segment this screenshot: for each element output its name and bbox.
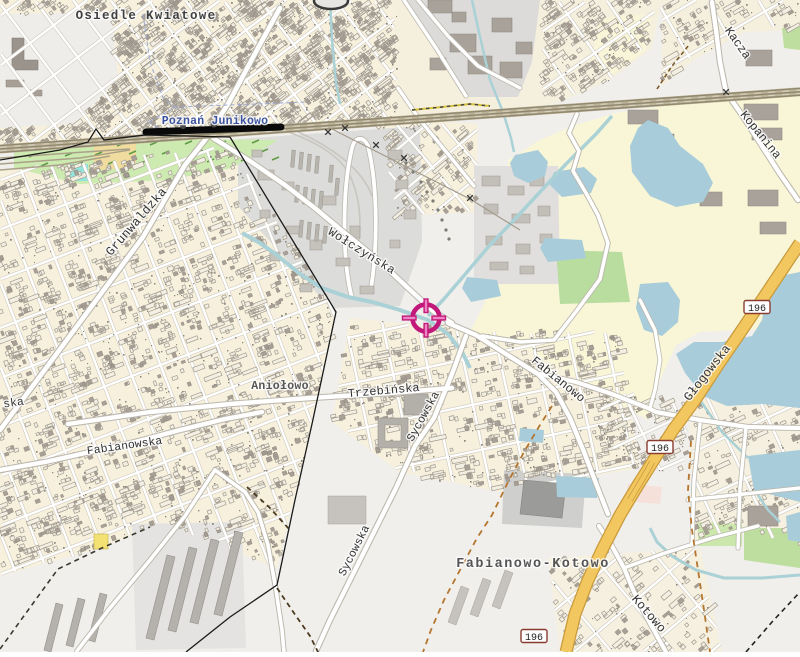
svg-text:Aniołowo: Aniołowo [251, 380, 309, 393]
svg-text:Fabianowo-Kotowo: Fabianowo-Kotowo [456, 557, 610, 572]
svg-text:Osiedle Kwiatowe: Osiedle Kwiatowe [76, 9, 217, 23]
svg-text:196: 196 [651, 444, 669, 455]
svg-text:Poznań Junikowo: Poznań Junikowo [162, 115, 269, 128]
svg-text:196: 196 [525, 633, 543, 644]
svg-text:196: 196 [748, 304, 766, 315]
